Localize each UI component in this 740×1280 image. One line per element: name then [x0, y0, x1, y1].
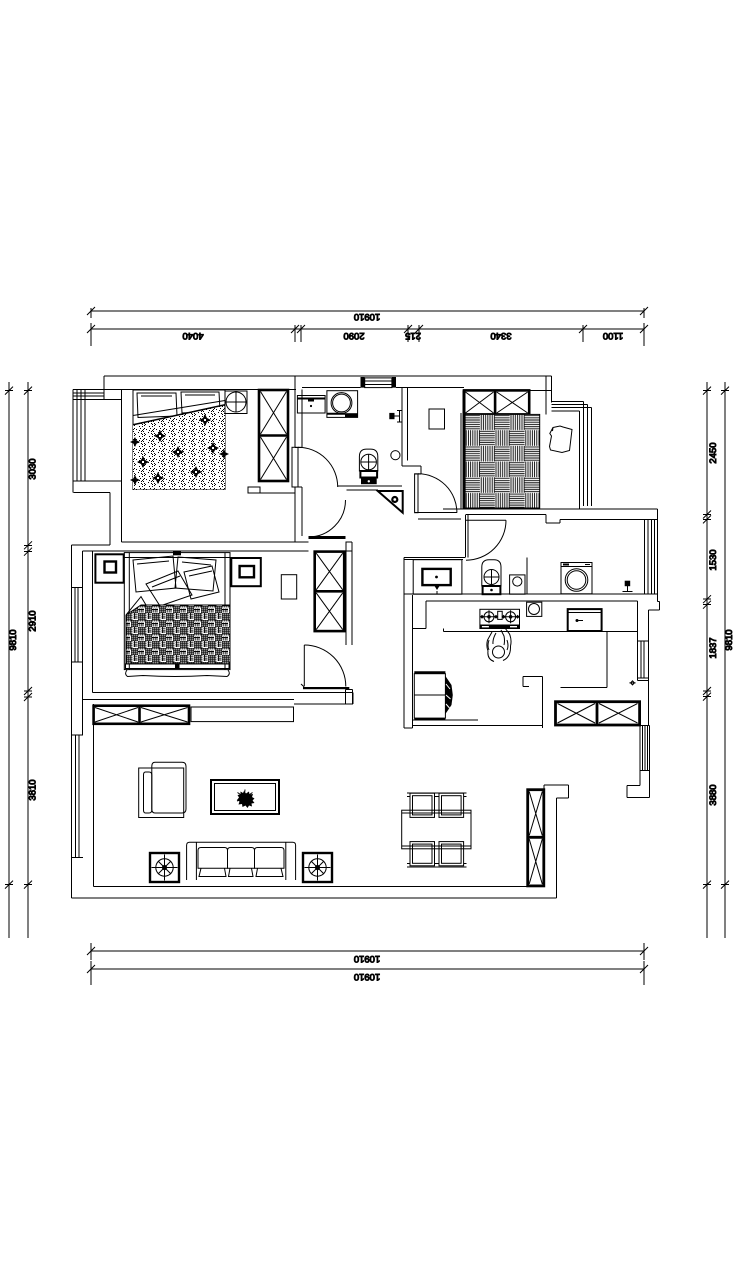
svg-text:3030: 3030 [28, 458, 39, 479]
svg-text:1837: 1837 [708, 637, 719, 658]
svg-text:215: 215 [405, 330, 421, 341]
svg-text:4040: 4040 [182, 330, 203, 341]
svg-text:3880: 3880 [708, 784, 719, 805]
svg-text:3340: 3340 [490, 330, 511, 341]
svg-text:10910: 10910 [354, 971, 380, 982]
svg-text:2090: 2090 [343, 330, 364, 341]
svg-text:3810: 3810 [28, 779, 39, 800]
svg-text:2910: 2910 [28, 610, 39, 631]
svg-text:1100: 1100 [603, 330, 623, 341]
svg-text:10910: 10910 [354, 953, 380, 964]
svg-text:2450: 2450 [708, 442, 719, 463]
svg-text:10910: 10910 [354, 311, 380, 322]
svg-text:1530: 1530 [708, 549, 719, 570]
svg-text:9810: 9810 [724, 629, 735, 650]
svg-text:9810: 9810 [8, 629, 19, 650]
